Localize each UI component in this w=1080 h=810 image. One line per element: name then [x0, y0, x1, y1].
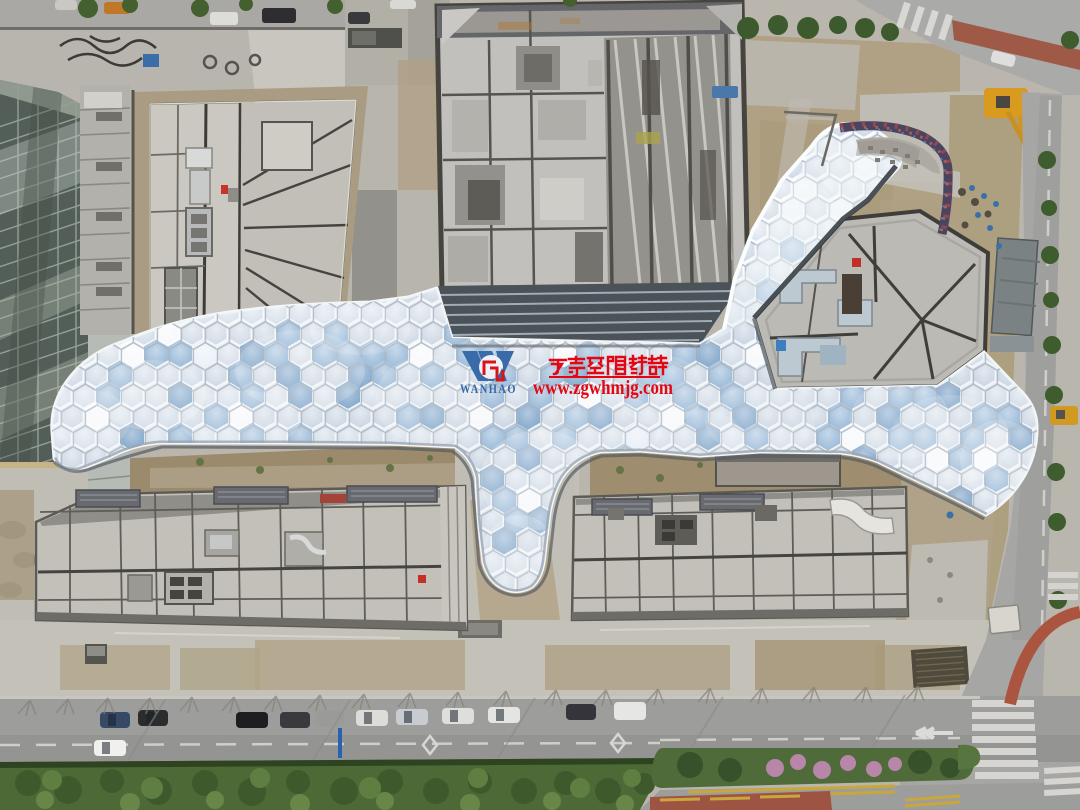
svg-text:WANHAO: WANHAO: [460, 381, 517, 396]
svg-text:www.zgwhmjg.com: www.zgwhmjg.com: [533, 377, 673, 399]
